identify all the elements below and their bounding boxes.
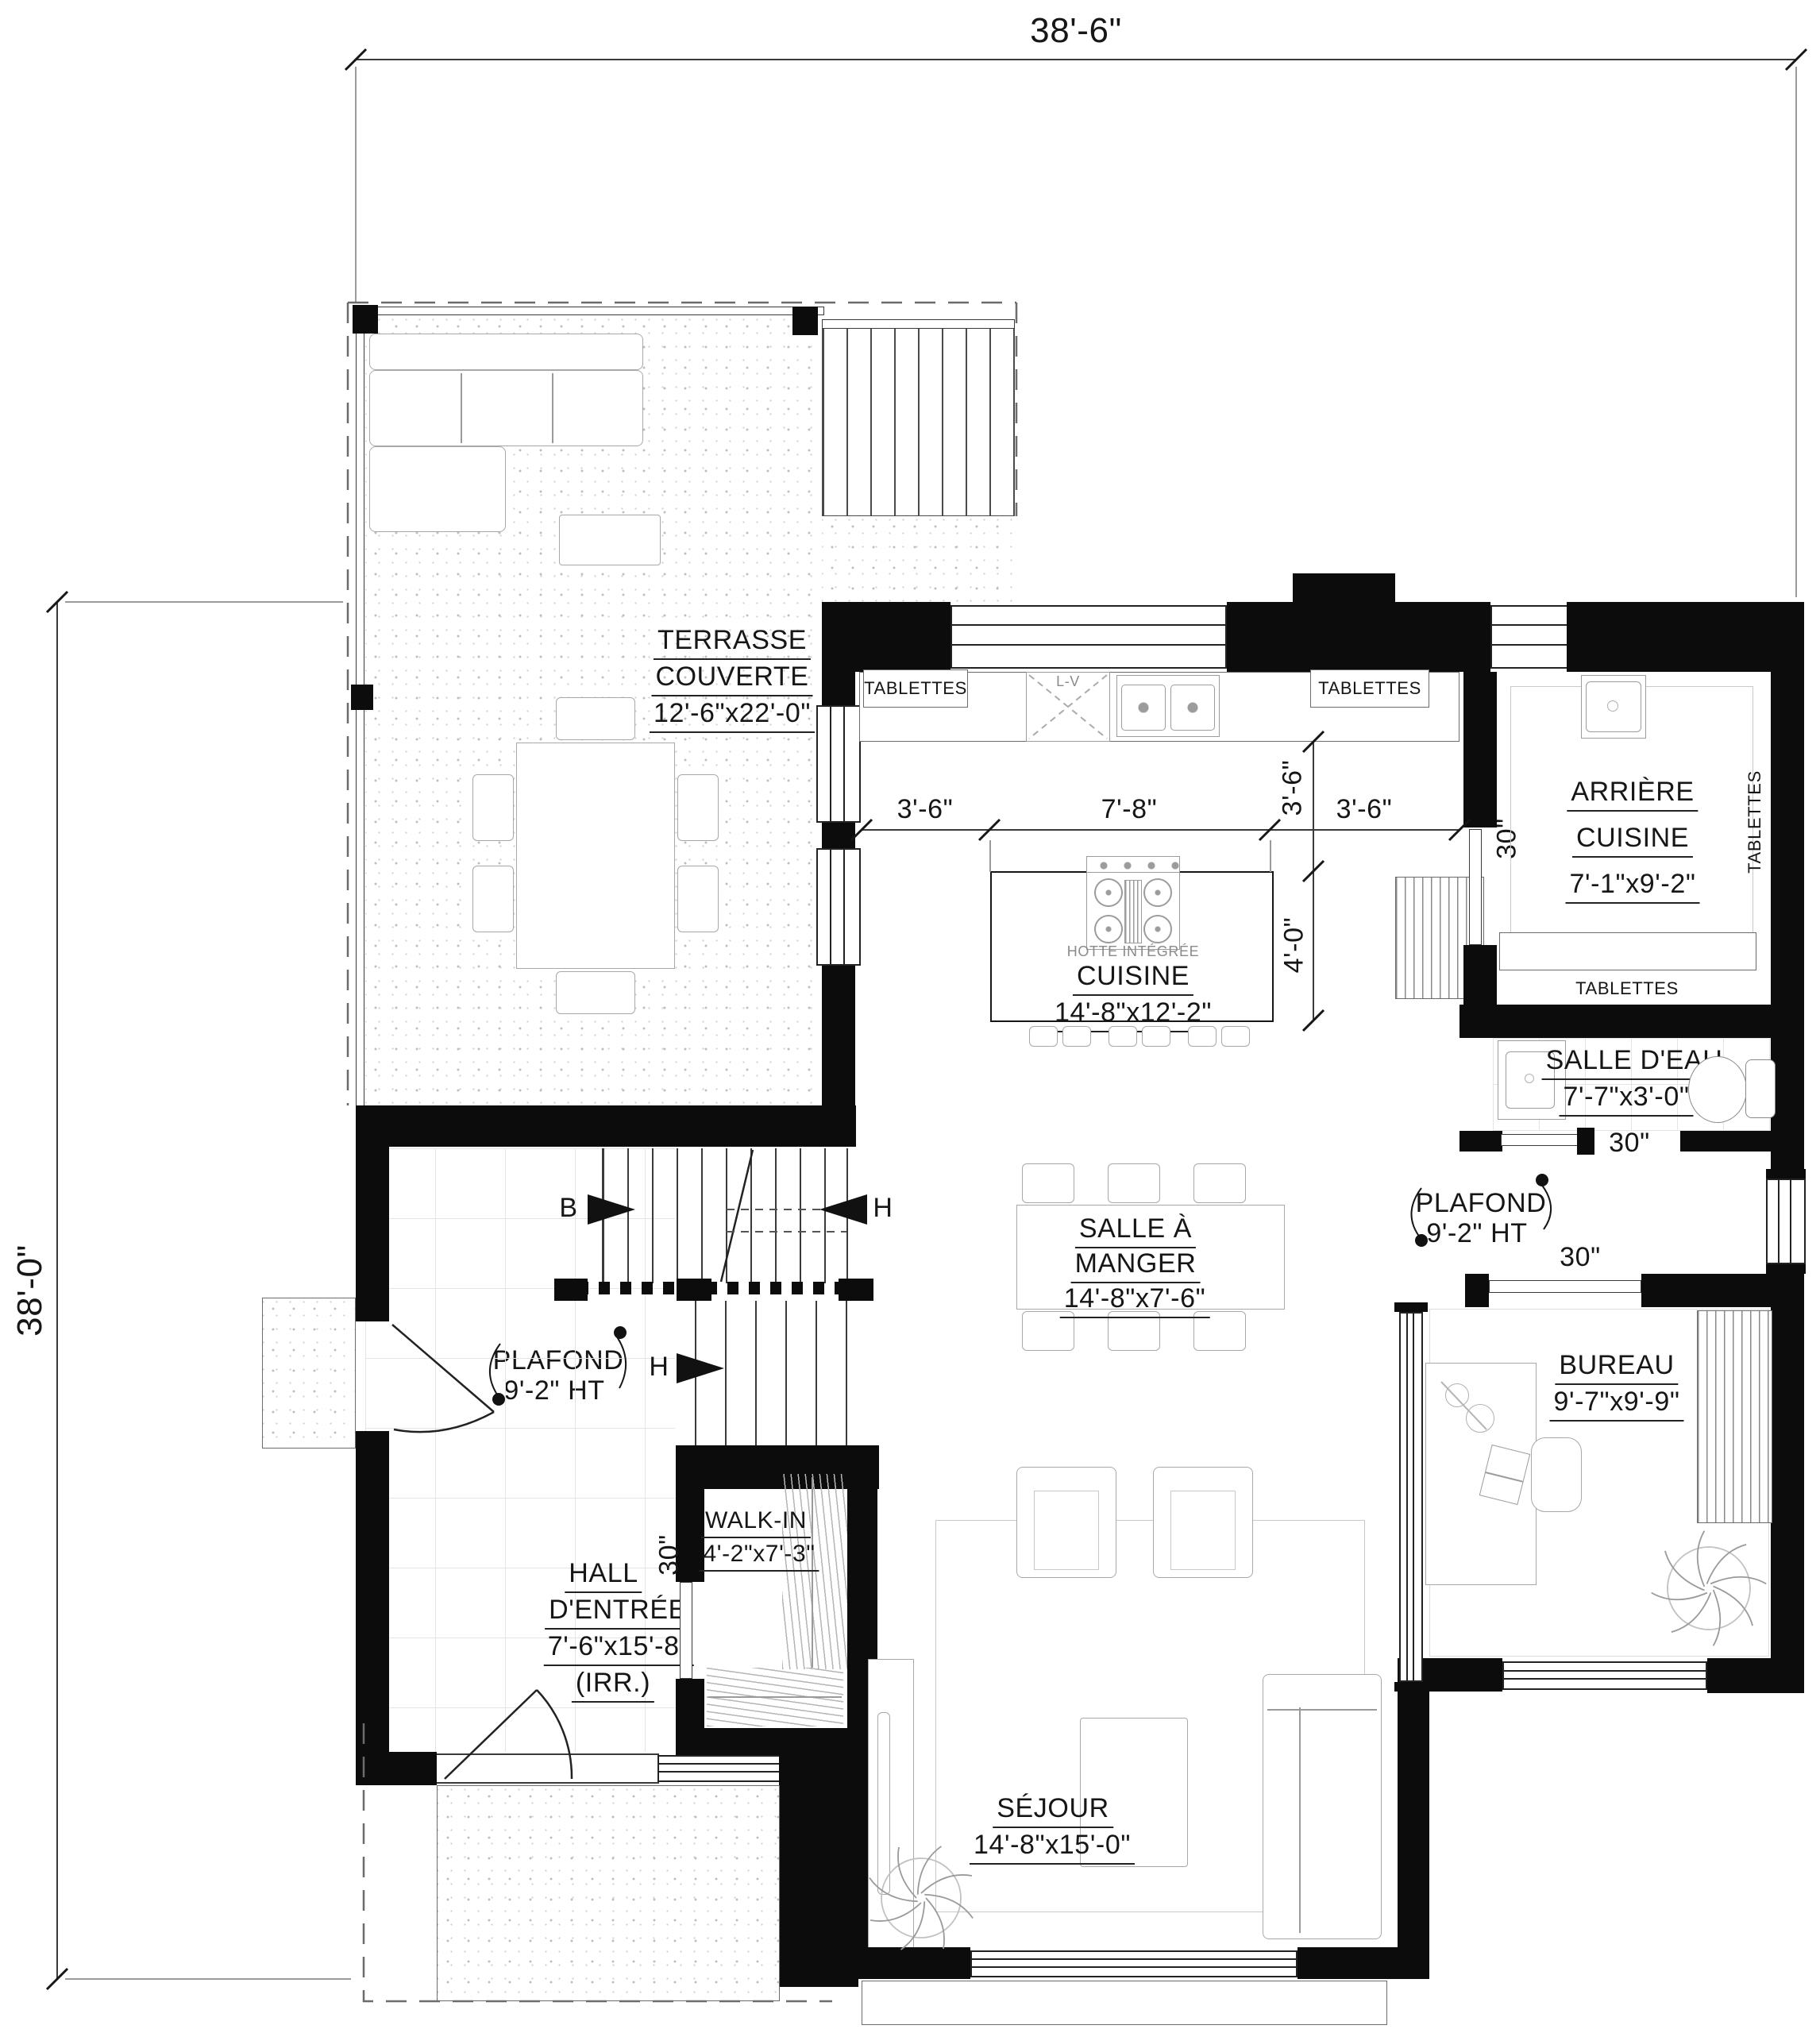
- hall-label-line2: D'ENTRÉE: [545, 1595, 691, 1626]
- hall-north-wall: [356, 1105, 856, 1147]
- toilet-bowl: [1688, 1056, 1747, 1123]
- kitchen-west-window-1: [816, 705, 861, 823]
- bureau-pocket-door: [1489, 1280, 1641, 1293]
- north-wall-seg-1: [822, 602, 950, 672]
- kitchen-west-wall-seg-1: [822, 672, 855, 705]
- sejour-south-window: [970, 1950, 1298, 1977]
- terrasse-chair-top: [556, 697, 635, 740]
- kitchen-west-wall-seg-3: [822, 966, 855, 1110]
- hall-label-line1: HALL: [565, 1558, 642, 1589]
- terrasse-sofa-chaise: [369, 446, 506, 532]
- arriere-north-window: [1490, 605, 1568, 669]
- top-dim-extension-left: [355, 67, 357, 303]
- salle-eau-dims-label: 7'-7"x3'-0": [1559, 1082, 1693, 1113]
- stove-burner-4: [1143, 915, 1172, 943]
- island-stool-3b: [1221, 1026, 1250, 1047]
- section-marker-h-right-label: H: [873, 1193, 893, 1224]
- left-dim-extension-bottom: [65, 1978, 351, 1980]
- stove-knobs: [1086, 856, 1180, 873]
- east-wall-upper: [1771, 602, 1804, 1177]
- stairs-beam-dotted-line: [556, 1282, 873, 1294]
- salle-eau-south-wall-right: [1680, 1131, 1804, 1152]
- terrasse-chair-left-1: [472, 774, 514, 841]
- stove-burner-2: [1143, 878, 1172, 907]
- terrasse-chair-right-1: [677, 774, 719, 841]
- dim-island-center: 7'-8": [1101, 794, 1158, 825]
- stairs-beam-block-center: [677, 1279, 711, 1301]
- section-marker-b-label: B: [559, 1193, 577, 1224]
- terrasse-top-edge: [356, 307, 824, 315]
- bureau-desk-decor-2: [1466, 1404, 1494, 1433]
- island-dim-line-vertical: [1313, 742, 1314, 1020]
- cuisine-label: CUISINE: [1073, 961, 1193, 992]
- shelves-label-kitchen-right: TABLETTES: [1318, 678, 1421, 699]
- salle-eau-sink-drain: [1525, 1074, 1534, 1083]
- dim-island-depth: 4'-0": [1279, 917, 1310, 974]
- sejour-east-wall: [1398, 1658, 1429, 1949]
- top-dim-extension-right: [1795, 67, 1797, 597]
- sejour-sofa-arm-line: [1267, 1709, 1377, 1711]
- dining-label-line1: SALLE À: [1075, 1213, 1196, 1244]
- front-door-head-line: [437, 1753, 659, 1755]
- north-wall-seg-3: [1567, 602, 1804, 672]
- east-wall-lower: [1771, 1274, 1804, 1693]
- island-stool-1b: [1062, 1026, 1091, 1047]
- toilet-tank: [1745, 1059, 1776, 1118]
- island-stool-2b: [1142, 1026, 1170, 1047]
- terrasse-label-line2: COUVERTE: [651, 662, 812, 692]
- arriere-label-line2: CUISINE: [1572, 823, 1693, 854]
- cuisine-dims-label: 14'-8"x12'-2": [1051, 997, 1216, 1028]
- sejour-sofa: [1263, 1674, 1382, 1939]
- east-window: [1766, 1179, 1806, 1264]
- stairs-up: [602, 1148, 849, 1283]
- terrasse-deck-steps: [822, 319, 1015, 516]
- arriere-counter: [1499, 932, 1756, 970]
- stairs-beam-block-left: [554, 1279, 588, 1301]
- arriere-west-wall-lower: [1463, 945, 1497, 1005]
- terrasse-chair-right-2: [677, 866, 719, 932]
- dim-counter-to-island: 3'-6": [1278, 760, 1309, 816]
- arriere-sink-drain: [1607, 700, 1618, 712]
- terrasse-post-west: [351, 685, 373, 710]
- section-marker-h-lower-label: H: [649, 1352, 669, 1383]
- terrasse-chair-left-2: [472, 866, 514, 932]
- bureau-south-wall-left: [1429, 1658, 1502, 1692]
- walkin-rod-south: [708, 1696, 842, 1698]
- front-door-sill-line: [437, 1782, 659, 1784]
- chimney-bump: [1293, 573, 1395, 618]
- arriere-pocket-door: [1469, 829, 1482, 945]
- stairs-down: [695, 1301, 847, 1445]
- bureau-dims-label: 9'-7"x9'-9": [1549, 1387, 1683, 1418]
- salle-eau-door-width-label: 30": [1609, 1128, 1650, 1159]
- bureau-chair: [1531, 1437, 1582, 1512]
- walkin-label: WALK-IN: [701, 1507, 811, 1534]
- arriere-west-wall-upper: [1463, 672, 1497, 827]
- island-dim-line: [862, 829, 1459, 831]
- island-dim-ext-1: [989, 840, 991, 872]
- bureau-glazed-wall: [1399, 1312, 1423, 1682]
- walkin-pocket-door: [680, 1582, 692, 1679]
- top-dimension-line: [356, 59, 1796, 60]
- overall-width-label: 38'-6": [1030, 11, 1122, 51]
- terrasse-deck-steps-top-edge: [822, 319, 1015, 329]
- stove-grill: [1124, 880, 1142, 943]
- bureau-label: BUREAU: [1555, 1350, 1678, 1381]
- sejour-armchair-2-seat: [1170, 1491, 1236, 1570]
- kitchen-west-wall-seg-2: [822, 823, 855, 848]
- kitchen-sink-basin-right: [1170, 685, 1215, 731]
- terrasse-sofa-back: [369, 334, 643, 370]
- sejour-porch: [862, 1981, 1387, 2025]
- salle-eau-north-wall: [1459, 1005, 1804, 1038]
- shelves-label-arriere-east: TABLETTES: [1745, 770, 1765, 874]
- plafond-right-line2: 9'-2" HT: [1426, 1218, 1527, 1249]
- stove-burner-3: [1094, 915, 1123, 943]
- hall-dims-label: 7'-6"x15'-8": [544, 1631, 694, 1662]
- hall-west-wall-upper: [356, 1147, 389, 1321]
- island-stool-3a: [1188, 1026, 1217, 1047]
- kitchen-north-window: [950, 605, 1227, 669]
- stove-burner-1: [1094, 878, 1123, 907]
- walkin-rod-east: [812, 1477, 813, 1668]
- walkin-dims-label: 4'-2"x7'-3": [699, 1541, 819, 1568]
- bureau-wardrobe-hatch: [1697, 1310, 1772, 1523]
- terrasse-dining-table: [516, 743, 675, 969]
- terrasse-floor-east: [822, 516, 1012, 604]
- terrasse-label-line1: TERRASSE: [654, 625, 811, 656]
- terrasse-sofa-divider-1: [461, 373, 462, 443]
- sejour-dims-label: 14'-8"x15'-0": [970, 1830, 1135, 1861]
- terrasse-sofa-divider-2: [552, 373, 553, 443]
- floor-plan: 38'-6" 38'-0" TERRASSE COUVERTE 12'-6"x2…: [0, 0, 1820, 2033]
- hall-irr-label: (IRR.): [572, 1668, 654, 1699]
- stairs-beam-block-right: [839, 1279, 873, 1301]
- left-dim-extension-top: [65, 601, 343, 603]
- terrasse-post-nw: [353, 305, 378, 334]
- plafond-right-line1: PLAFOND: [1416, 1188, 1547, 1219]
- dining-dims-label: 14'-8"x7'-6": [1060, 1283, 1210, 1314]
- side-stoop: [262, 1298, 356, 1449]
- sejour-sofa-seat-line: [1299, 1707, 1301, 1933]
- shelves-label-arriere-south: TABLETTES: [1575, 978, 1679, 999]
- bureau-door-stub: [1465, 1274, 1489, 1307]
- bureau-glazing-cap-bottom: [1394, 1682, 1428, 1692]
- walkin-door-width-label: 30": [654, 1534, 685, 1576]
- stairs-right-line: [846, 1148, 848, 1285]
- island-dim-ext-2: [1270, 840, 1271, 872]
- hall-south-wall-left: [356, 1752, 437, 1785]
- front-porch: [437, 1785, 780, 2001]
- sejour-south-wall-right: [1298, 1947, 1429, 1979]
- bureau-south-wall-right: [1707, 1658, 1804, 1693]
- front-sidelight-window: [657, 1755, 781, 1782]
- bureau-door-width-label: 30": [1560, 1242, 1601, 1273]
- tv: [877, 1712, 890, 1895]
- east-window-cap-top: [1766, 1169, 1806, 1179]
- dim-island-left: 3'-6": [897, 794, 954, 825]
- dining-label-line2: MANGER: [1071, 1248, 1201, 1279]
- sejour-south-wall-left: [826, 1947, 970, 1979]
- shelves-label-kitchen-left: TABLETTES: [864, 678, 967, 699]
- dining-chair-top-1: [1022, 1163, 1074, 1203]
- hood-label: HOTTE INTÉGRÉE: [1067, 943, 1199, 960]
- walkin-clothes-east: [782, 1474, 847, 1669]
- island-stool-1a: [1029, 1026, 1058, 1047]
- kitchen-sink-basin-left: [1121, 685, 1166, 731]
- sejour-label: SÉJOUR: [993, 1793, 1113, 1824]
- terrasse-chair-bottom: [556, 971, 635, 1014]
- east-window-cap-bottom: [1766, 1264, 1806, 1274]
- salle-eau-south-wall-left: [1459, 1131, 1502, 1152]
- dishwasher-label: L-V: [1056, 673, 1080, 690]
- overall-height-label: 38'-0": [10, 1244, 50, 1337]
- kitchen-west-window-2: [816, 848, 861, 966]
- bureau-glazing-cap-top: [1394, 1302, 1428, 1312]
- arriere-dims-label: 7'-1"x9'-2": [1565, 869, 1699, 900]
- bureau-north-wall: [1641, 1274, 1771, 1307]
- dim-island-right: 3'-6": [1336, 794, 1393, 825]
- tv-console: [868, 1659, 914, 1950]
- bureau-desk-decor-1: [1445, 1383, 1469, 1407]
- terrasse-dims-label: 12'-6"x22'-0": [650, 698, 815, 729]
- sejour-armchair-1-seat: [1034, 1491, 1099, 1570]
- dining-chair-top-2: [1108, 1163, 1160, 1203]
- island-stool-2a: [1109, 1026, 1137, 1047]
- terrasse-coffee-table: [559, 515, 661, 565]
- arriere-label-line1: ARRIÈRE: [1567, 777, 1698, 808]
- hall-west-wall-lower: [356, 1431, 389, 1753]
- terrasse-sofa-seats: [369, 370, 643, 446]
- terrasse-post-ne: [792, 307, 818, 335]
- dining-chair-top-3: [1193, 1163, 1246, 1203]
- left-dimension-line: [56, 602, 58, 1979]
- bureau-south-window: [1502, 1661, 1707, 1690]
- salle-eau-door-jamb: [1577, 1128, 1594, 1155]
